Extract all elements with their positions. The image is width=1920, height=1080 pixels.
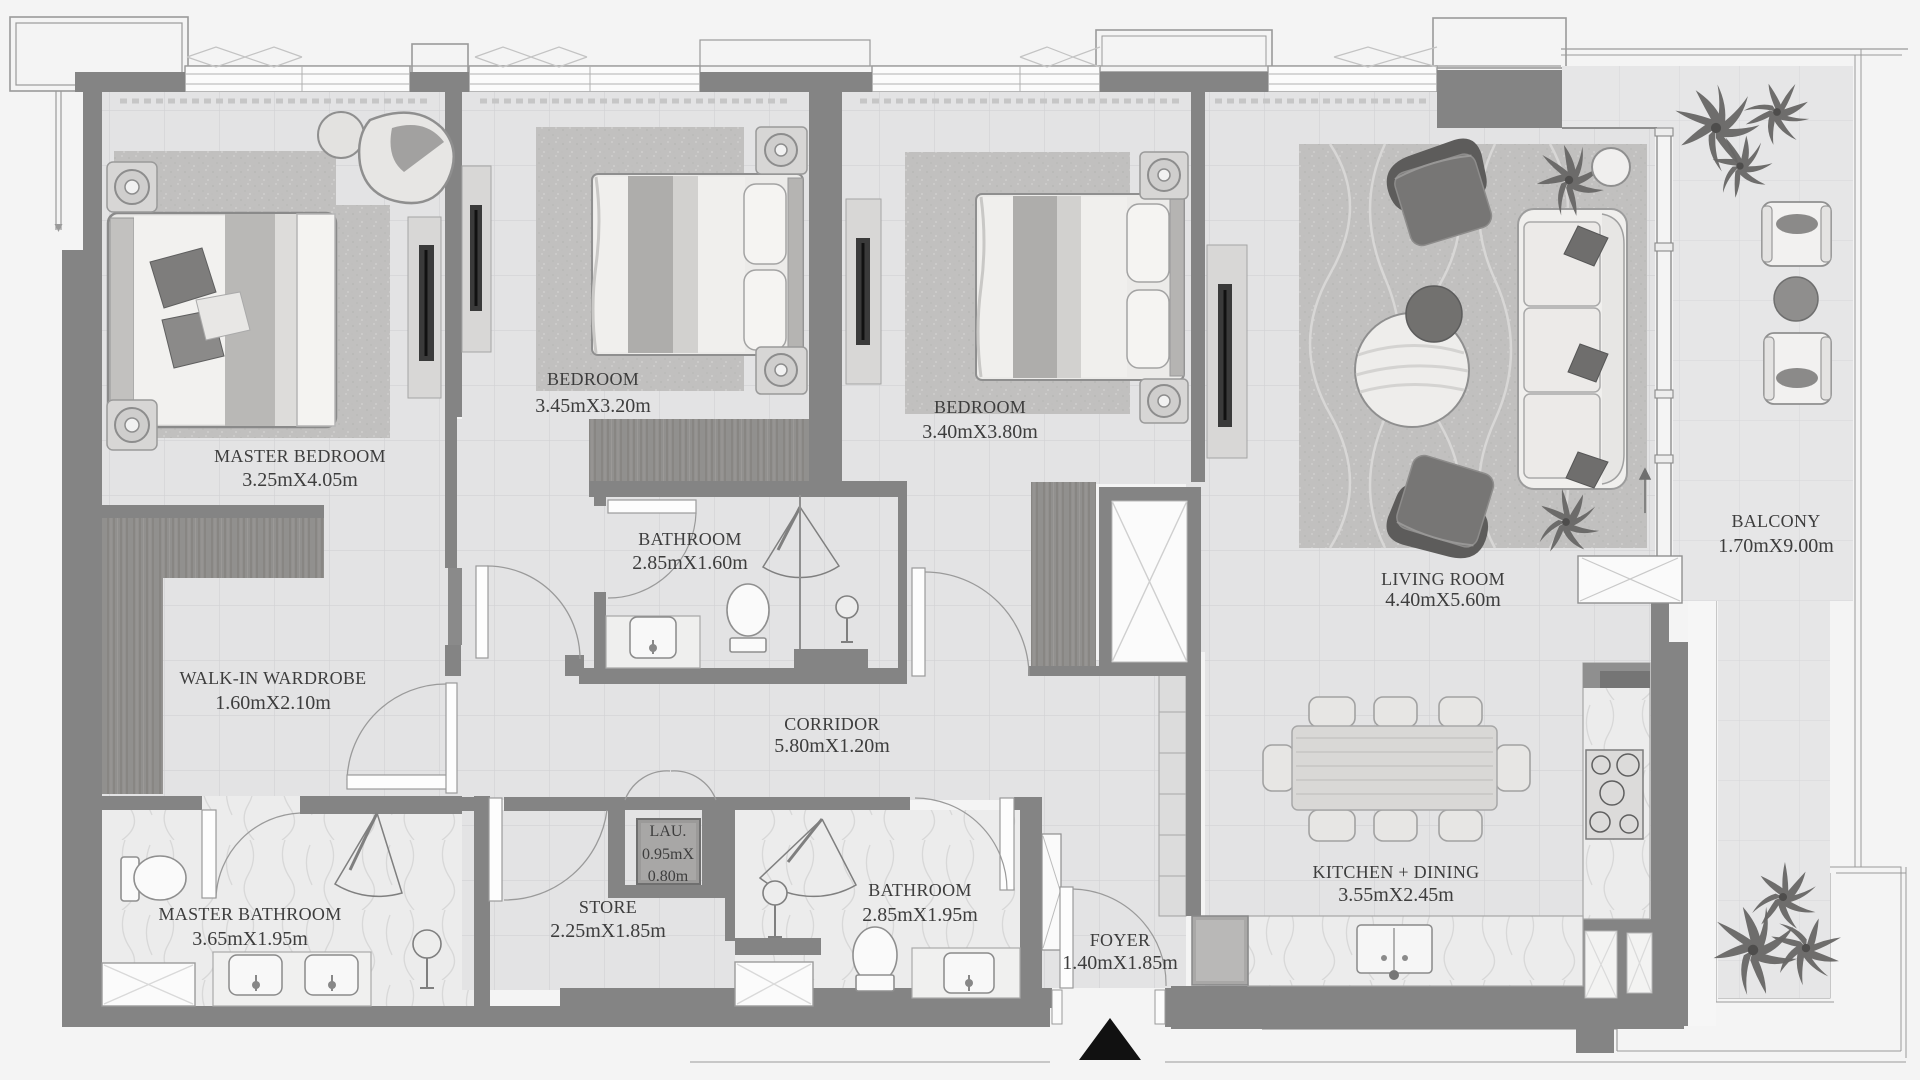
svg-text:2.85mX1.95m: 2.85mX1.95m [862,904,978,926]
svg-text:BATHROOM: BATHROOM [868,880,971,900]
svg-text:2.25mX1.85m: 2.25mX1.85m [550,920,666,942]
svg-text:3.45mX3.20m: 3.45mX3.20m [535,395,651,417]
svg-text:3.25mX4.05m: 3.25mX4.05m [242,469,358,491]
svg-text:0.95mX: 0.95mX [642,846,694,863]
svg-text:MASTER BATHROOM: MASTER BATHROOM [158,904,341,924]
svg-text:1.40mX1.85m: 1.40mX1.85m [1062,952,1178,974]
svg-text:STORE: STORE [579,897,637,917]
svg-text:BEDROOM: BEDROOM [547,369,639,389]
svg-text:1.60mX2.10m: 1.60mX2.10m [215,692,331,714]
svg-text:CORRIDOR: CORRIDOR [784,714,879,734]
svg-text:KITCHEN + DINING: KITCHEN + DINING [1313,862,1480,882]
svg-text:WALK-IN WARDROBE: WALK-IN WARDROBE [180,668,367,688]
svg-text:LIVING ROOM: LIVING ROOM [1381,569,1505,589]
svg-text:2.85mX1.60m: 2.85mX1.60m [632,552,748,574]
svg-text:MASTER BEDROOM: MASTER BEDROOM [214,446,386,466]
svg-text:LAU.: LAU. [650,823,687,840]
svg-text:3.55mX2.45m: 3.55mX2.45m [1338,884,1454,906]
svg-text:3.65mX1.95m: 3.65mX1.95m [192,928,308,950]
svg-text:BALCONY: BALCONY [1731,511,1820,531]
svg-text:3.40mX3.80m: 3.40mX3.80m [922,421,1038,443]
svg-text:BATHROOM: BATHROOM [638,529,741,549]
svg-text:4.40mX5.60m: 4.40mX5.60m [1385,589,1501,611]
svg-text:FOYER: FOYER [1090,930,1151,950]
svg-text:1.70mX9.00m: 1.70mX9.00m [1718,535,1834,557]
svg-text:5.80mX1.20m: 5.80mX1.20m [774,735,890,757]
svg-text:BEDROOM: BEDROOM [934,397,1026,417]
svg-text:0.80m: 0.80m [648,868,689,885]
